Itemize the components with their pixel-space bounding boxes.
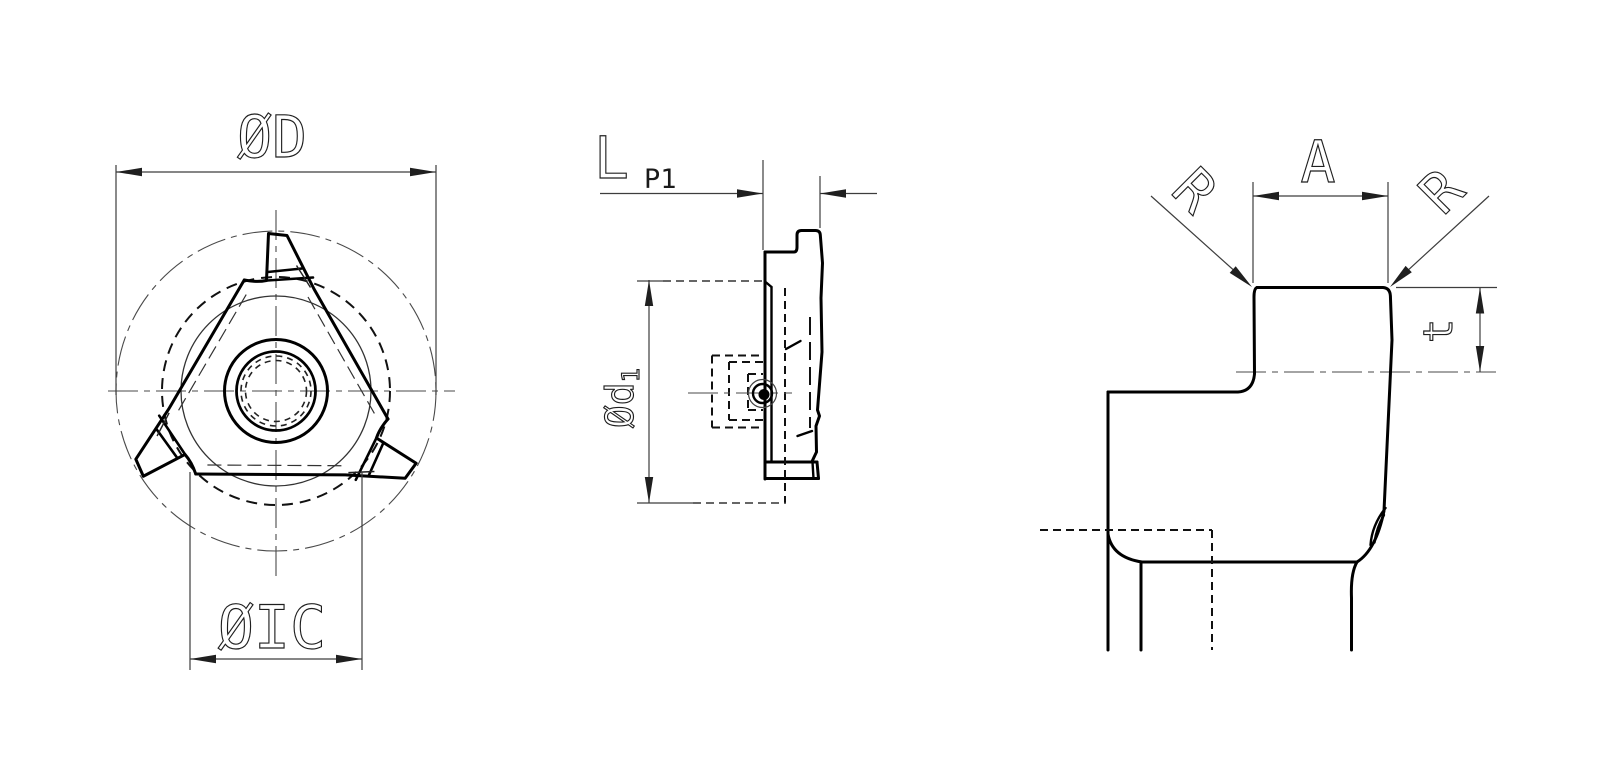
side-bottom-right-edge <box>817 462 819 479</box>
arrowhead <box>1230 266 1252 287</box>
side-bottom-inner-edge <box>813 462 814 479</box>
arrowhead <box>1390 266 1412 287</box>
dim-corner-radius-left: R <box>1151 156 1252 287</box>
insert-tooth-segment-rotated-240 <box>84 280 316 497</box>
arrowhead <box>190 655 216 663</box>
detail-fillet-left <box>1108 534 1142 562</box>
dim-label-t: t <box>1416 319 1462 343</box>
arrowhead <box>1476 346 1484 372</box>
arrowhead <box>336 655 362 663</box>
arrowhead <box>116 168 142 176</box>
dim-label-inscribed-circle: ØIC <box>218 593 326 663</box>
detail-shelf-and-tooth-left <box>1108 288 1257 393</box>
dim-hole-circle-d1: Ød1 <box>598 280 786 503</box>
arrowhead <box>1253 192 1279 200</box>
dim-label-length: L <box>594 124 629 192</box>
dim-label-d1: Ød1 <box>598 368 645 428</box>
dim-tip-offset: L P1 <box>594 124 877 250</box>
arrowhead <box>645 477 653 503</box>
dim-tooth-depth: t <box>1396 288 1497 373</box>
tooth-step-line-1 <box>268 269 302 273</box>
arrowhead <box>1476 288 1484 314</box>
dim-label-p1: P1 <box>644 164 677 195</box>
hidden-countersink <box>712 356 763 428</box>
arrowhead <box>410 168 436 176</box>
arrowhead <box>820 189 846 197</box>
dim-tip-width: A <box>1253 128 1388 283</box>
dim-label-a: A <box>1301 128 1336 196</box>
insert-tooth-segment-rotated-120 <box>196 350 428 567</box>
side-tooth-edge-lower <box>798 431 813 436</box>
technical-drawing: ØD ØIC <box>0 0 1600 770</box>
detail-profile-right <box>1142 288 1392 563</box>
arrowhead <box>645 280 653 306</box>
dim-corner-radius-right: R <box>1390 157 1489 287</box>
hole-mark-dot <box>759 389 770 400</box>
drawing-canvas: ØD ØIC <box>0 0 1600 770</box>
detail-view: A R R t <box>1040 128 1497 650</box>
arrowhead <box>737 189 763 197</box>
detail-edge-lower-right <box>1351 562 1357 650</box>
dim-label-outer-diameter: ØD <box>237 103 307 171</box>
side-tooth-edge-upper <box>786 341 801 349</box>
dim-label-r-left: R <box>1159 156 1229 226</box>
flank-land-line <box>308 297 377 418</box>
arrowhead <box>1362 192 1388 200</box>
front-view: ØD ØIC <box>84 103 455 670</box>
screw-hole-mark <box>749 380 777 408</box>
side-view: L P1 Ød1 <box>594 124 877 503</box>
